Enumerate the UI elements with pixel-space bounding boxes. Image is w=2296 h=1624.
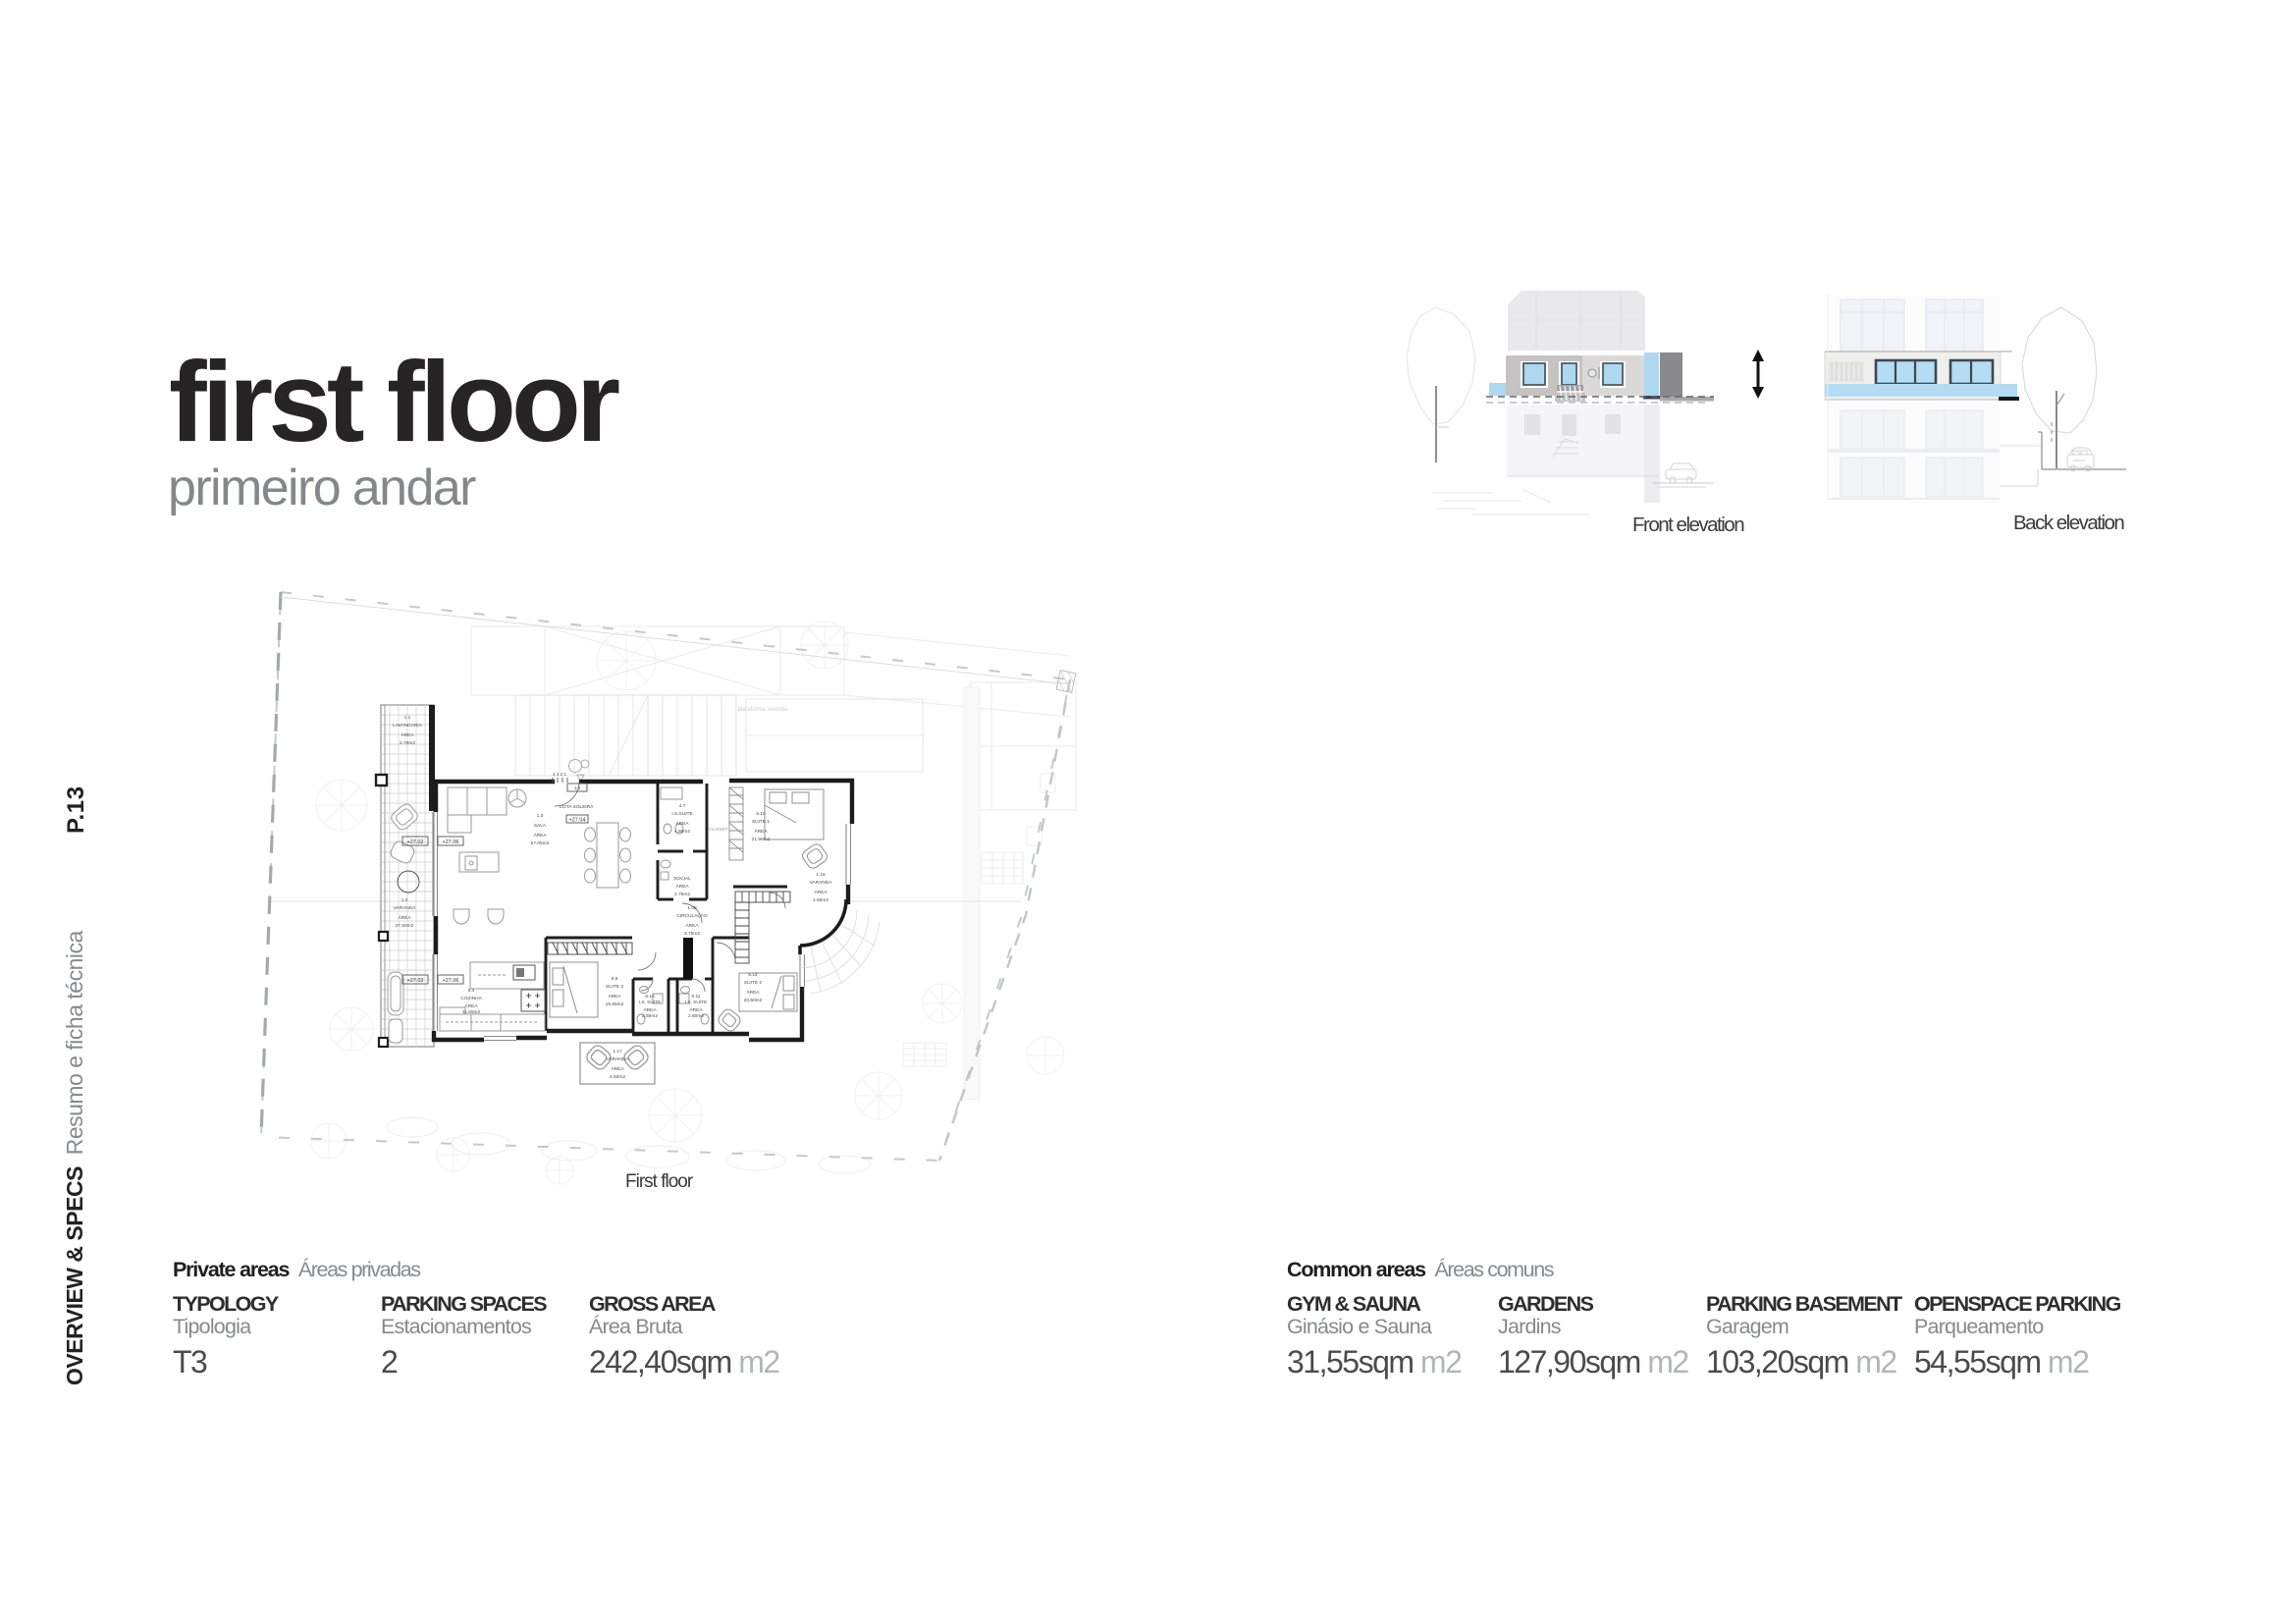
svg-text:ÁREA: ÁREA [675,883,689,890]
svg-text:COZINHA: COZINHA [460,996,482,1001]
svg-text:VARANDA: VARANDA [607,1056,630,1062]
svg-text:SUITE 1: SUITE 1 [752,819,770,825]
svg-text:ÁREA: ÁREA [675,820,689,827]
svg-text:SUITE 3: SUITE 3 [606,984,623,990]
svg-text:ÁREA: ÁREA [754,828,768,835]
svg-text:I.S. SUITE: I.S. SUITE [639,1000,662,1005]
svg-text:plataforma vivenda: plataforma vivenda [738,707,788,713]
svg-text:1.1: 1.1 [404,715,411,721]
svg-text:LAVANDARIA: LAVANDARIA [393,723,422,729]
svg-text:6.13: 6.13 [756,811,766,817]
svg-text:ÁREA: ÁREA [643,1006,657,1013]
svg-text:4.7: 4.7 [679,803,686,809]
svg-text:+27.06: +27.06 [443,978,459,984]
svg-text:ÁREA: ÁREA [608,993,621,1000]
svg-text:SALA: SALA [534,823,547,829]
svg-text:1.5: 1.5 [574,785,581,790]
svg-text:+27.02: +27.02 [407,839,424,845]
svg-text:57.05m2: 57.05m2 [531,840,550,846]
svg-text:1.08: 1.08 [687,905,697,911]
svg-text:CIRCULAÇÃO: CIRCULAÇÃO [676,912,708,919]
svg-text:ÁREA: ÁREA [464,1002,478,1009]
svg-text:15.65m2: 15.65m2 [606,1001,624,1007]
svg-text:6.4: 6.4 [468,988,475,994]
svg-text:I.S.SUITE: I.S.SUITE [671,811,692,817]
svg-text:ÁREA: ÁREA [689,1006,703,1013]
svg-text:2.65m2: 2.65m2 [813,897,828,903]
svg-text:2.75m2: 2.75m2 [674,892,690,897]
svg-text:27.50m2: 27.50m2 [396,923,414,929]
svg-text:VARANDA: VARANDA [810,880,833,886]
svg-text:COTA SOLEIRA: COTA SOLEIRA [560,804,595,810]
svg-text:4.90m2: 4.90m2 [674,829,690,835]
svg-text:3.75m2: 3.75m2 [684,931,700,937]
svg-text:4 3 2 1: 4 3 2 1 [553,772,566,777]
svg-text:1.16: 1.16 [816,872,826,878]
svg-text:VARANDA: VARANDA [394,905,417,911]
svg-text:+27.02: +27.02 [407,978,424,984]
svg-text:6.14: 6.14 [748,972,758,978]
svg-text:6.9: 6.9 [612,976,618,982]
svg-text:+27.04: +27.04 [569,818,586,824]
svg-text:CLOSET: CLOSET [709,827,727,833]
svg-text:6.10: 6.10 [645,994,655,1000]
svg-text:ÁREA: ÁREA [611,1065,624,1072]
svg-text:1.3: 1.3 [537,813,544,819]
svg-text:2.70m2: 2.70m2 [400,740,415,746]
svg-text:2.80m2: 2.80m2 [688,1013,704,1019]
svg-text:6.11: 6.11 [692,994,701,1000]
svg-text:I.S. SUITE: I.S. SUITE [685,1000,708,1005]
svg-text:4.50m2: 4.50m2 [610,1074,625,1080]
svg-text:1.17: 1.17 [613,1049,622,1055]
svg-text:ÁREA: ÁREA [746,989,760,996]
svg-text:2.80m2: 2.80m2 [642,1013,658,1019]
svg-text:ÁREA: ÁREA [533,832,547,839]
svg-text:SOCIAL: SOCIAL [673,876,691,882]
svg-text:SUITE 2: SUITE 2 [744,980,762,986]
svg-text:11.65m2: 11.65m2 [462,1009,481,1015]
svg-text:21.56m2: 21.56m2 [752,837,771,842]
svg-text:ÁREA: ÁREA [400,731,414,738]
svg-text:+27.06: +27.06 [443,839,459,845]
svg-text:ÁREA: ÁREA [814,889,828,895]
svg-text:ÁREA: ÁREA [685,922,699,929]
svg-text:20.50m2: 20.50m2 [744,998,763,1003]
svg-text:1.2: 1.2 [401,897,408,903]
svg-text:ÁREA: ÁREA [398,914,411,921]
